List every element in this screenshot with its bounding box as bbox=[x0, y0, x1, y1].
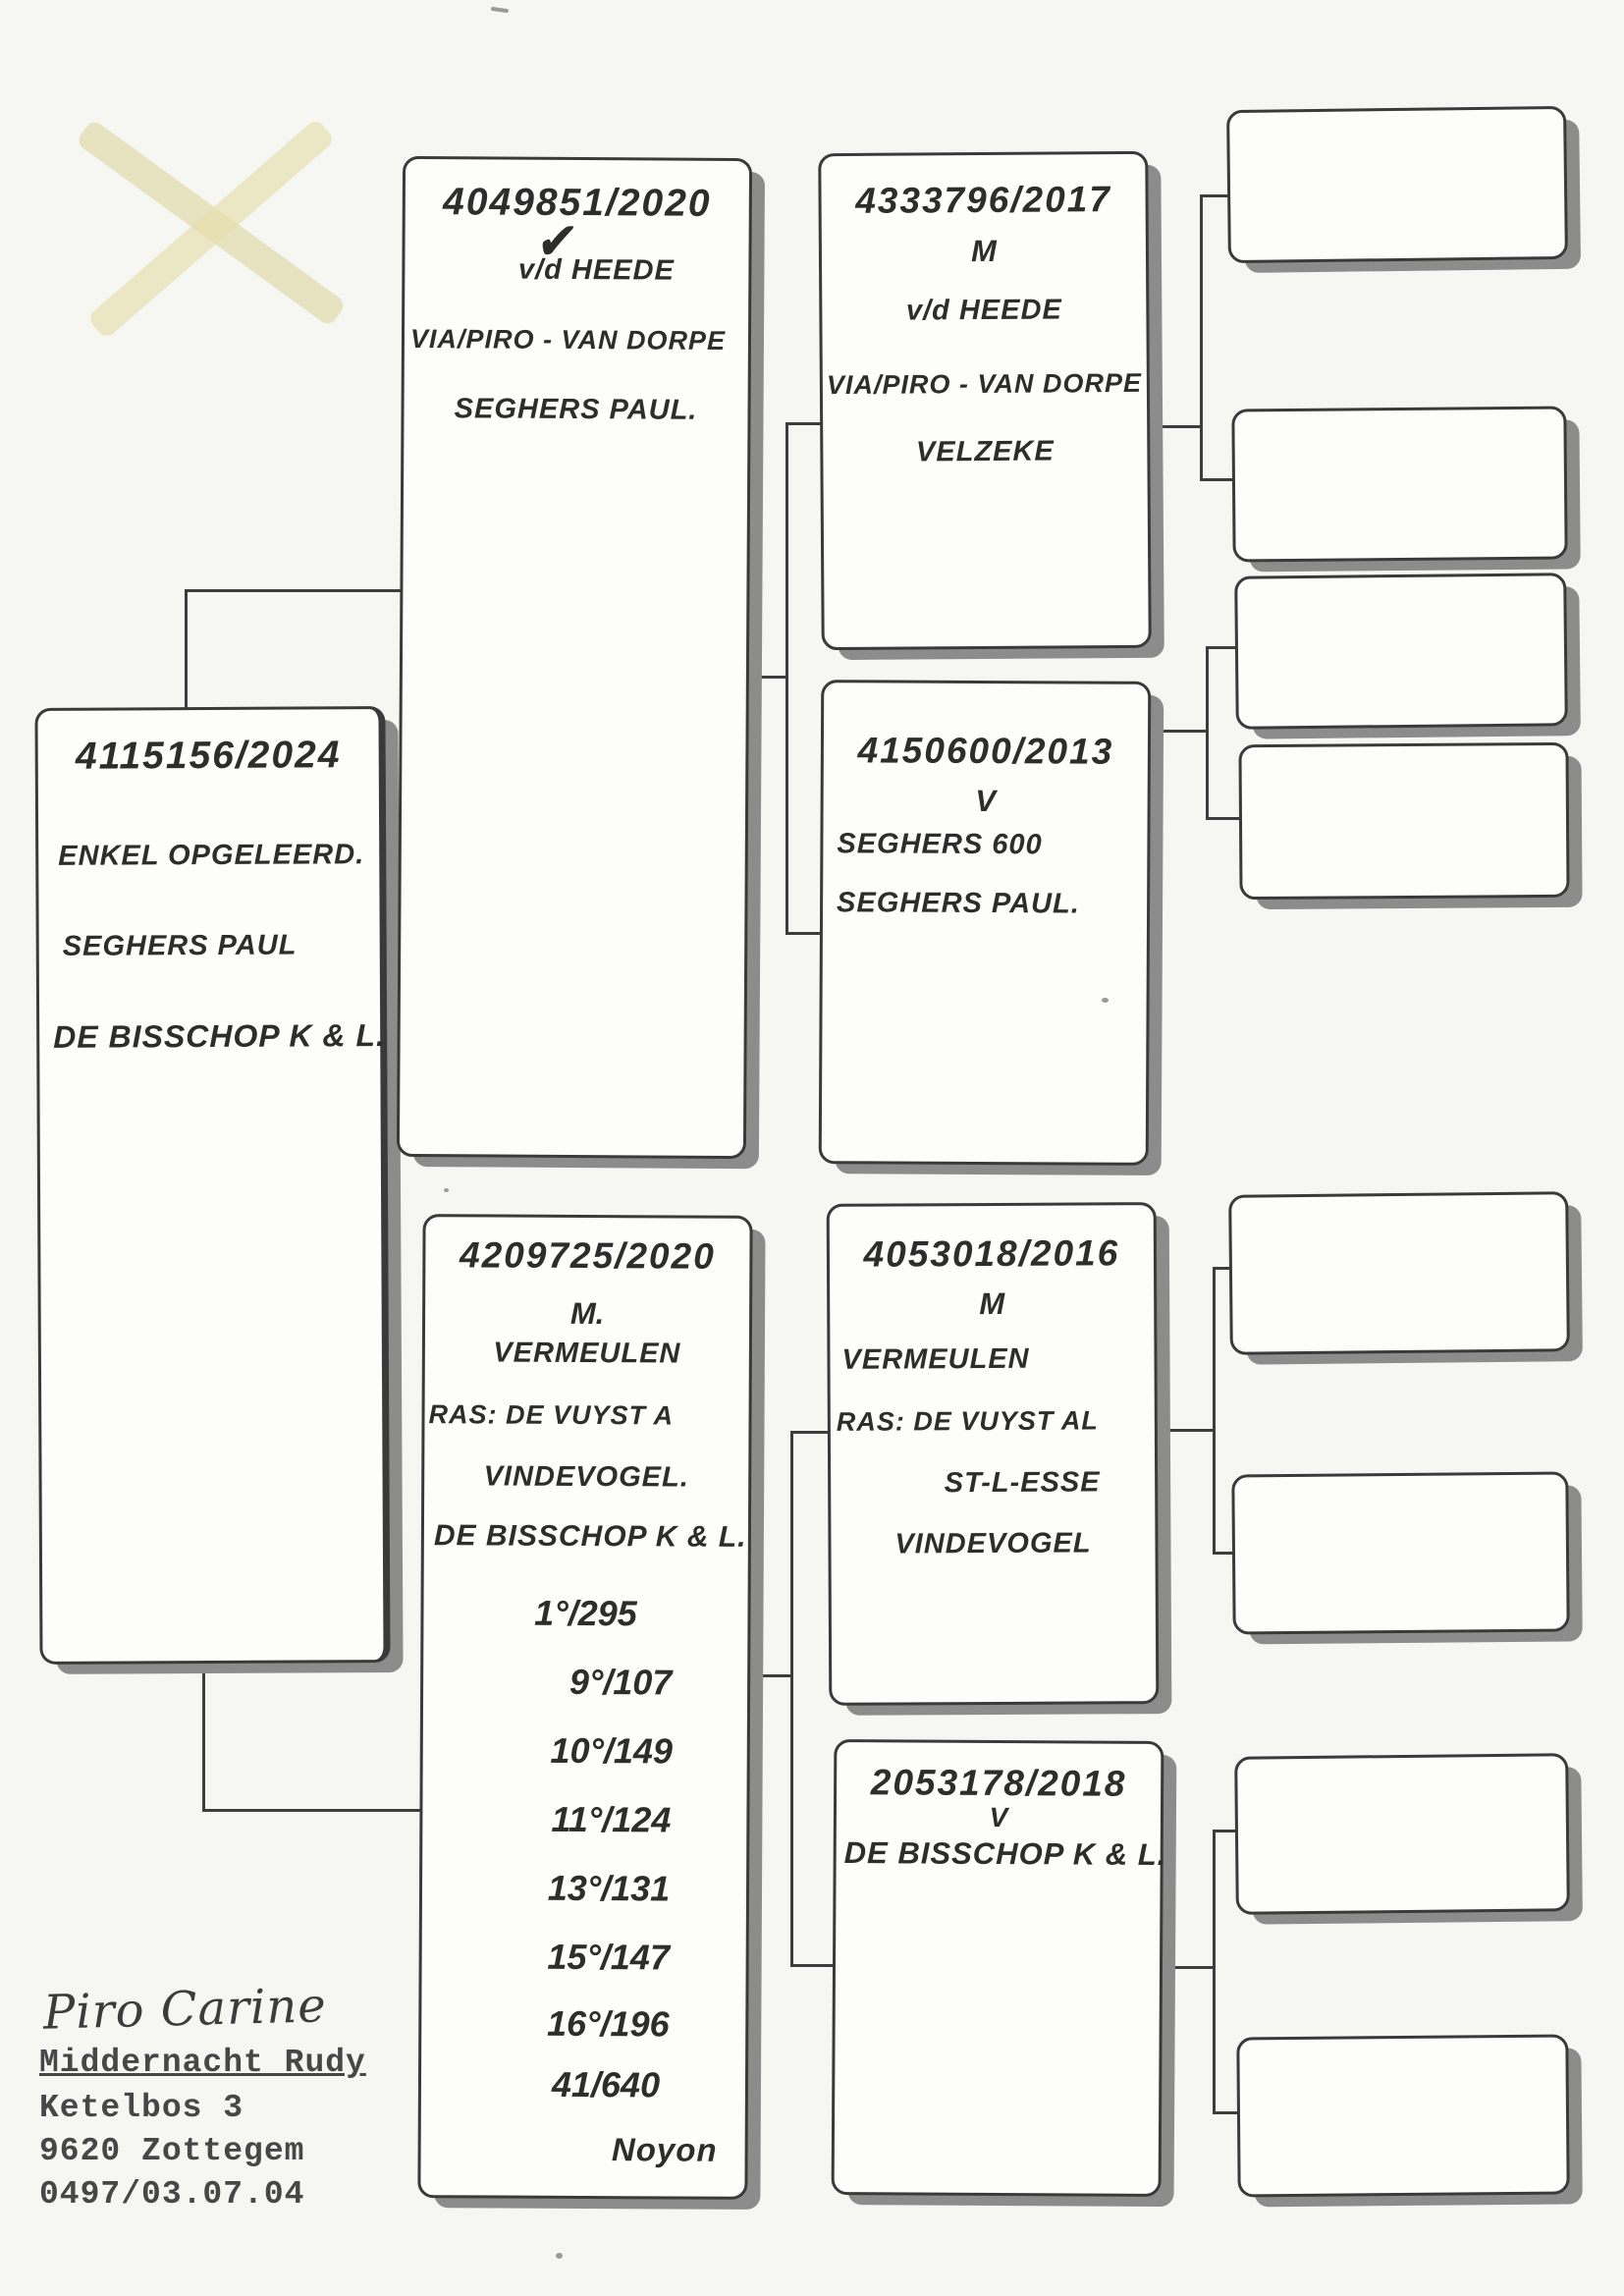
connector-line bbox=[1206, 646, 1237, 649]
pedigree-line: VINDEVOGEL bbox=[839, 1527, 1147, 1561]
pedigree-line: DE BISSCHOP K & L. bbox=[434, 1519, 740, 1555]
sire-box: 4049851/2020 ✔ v/d HEEDE VIA/PIRO - VAN … bbox=[397, 156, 752, 1159]
pedigree-line: VINDEVOGEL. bbox=[432, 1460, 740, 1495]
connector-line bbox=[1152, 1429, 1215, 1432]
dam-box: 4209725/2020 M. VERMEULEN RAS: DE VUYST … bbox=[417, 1214, 752, 2200]
ring-number: 4115156/2024 bbox=[46, 734, 371, 779]
connector-line bbox=[790, 1431, 830, 1434]
connector-line bbox=[785, 932, 822, 935]
pedigree-line: ST-L-ESSE bbox=[839, 1466, 1147, 1501]
pedigree-line: v/d HEEDE bbox=[830, 294, 1138, 328]
connector-line bbox=[1213, 1267, 1216, 1555]
great-grandparent-box-5 bbox=[1228, 1191, 1570, 1355]
connector-line bbox=[1213, 1830, 1237, 1832]
connector-line bbox=[1213, 1552, 1234, 1555]
owner-street: Ketelbos 3 bbox=[39, 2090, 244, 2126]
owner-signature: Piro Carine bbox=[42, 1978, 327, 2041]
connector-line bbox=[743, 676, 787, 679]
connector-line bbox=[1213, 2111, 1239, 2114]
pedigree-line: SEGHERS PAUL. bbox=[837, 887, 1139, 921]
sex-mark: V bbox=[844, 1801, 1153, 1834]
race-result: 11°/124 bbox=[483, 1798, 738, 1840]
scan-speck bbox=[444, 1188, 449, 1192]
great-grandparent-box-8 bbox=[1236, 2035, 1569, 2198]
connector-line bbox=[1144, 425, 1202, 428]
connector-line bbox=[202, 1809, 422, 1812]
scan-speck bbox=[491, 7, 509, 13]
connector-line bbox=[1213, 1830, 1216, 2114]
connector-line bbox=[1200, 194, 1203, 481]
connector-line bbox=[785, 422, 822, 425]
connector-line bbox=[202, 1658, 205, 1812]
great-grandparent-box-7 bbox=[1234, 1753, 1570, 1915]
owner-city: 9620 Zottegem bbox=[39, 2133, 304, 2169]
connector-line bbox=[1200, 478, 1234, 481]
race-result: 1°/295 bbox=[431, 1592, 739, 1635]
grandparent-box-1: 4333796/2017 M v/d HEEDE VIA/PIRO - VAN … bbox=[818, 151, 1152, 650]
connector-line bbox=[1206, 646, 1209, 820]
owner-phone: 0497/03.07.04 bbox=[39, 2176, 304, 2213]
grandparent-box-2: 4150600/2013 V SEGHERS 600 SEGHERS PAUL. bbox=[819, 680, 1152, 1166]
ring-number: 4053018/2016 bbox=[838, 1232, 1146, 1276]
connector-line bbox=[1206, 817, 1241, 820]
sex-mark: M bbox=[838, 1285, 1146, 1323]
connector-line bbox=[1144, 730, 1208, 733]
connector-line bbox=[1200, 194, 1229, 197]
connector-line bbox=[790, 1431, 793, 1967]
race-result: 16°/196 bbox=[478, 2002, 737, 2045]
ring-number: 4333796/2017 bbox=[829, 179, 1137, 222]
pedigree-line: SEGHERS PAUL bbox=[63, 929, 372, 963]
connector-line bbox=[1157, 1966, 1215, 1969]
connector-line bbox=[185, 589, 188, 710]
connector-line bbox=[790, 1964, 835, 1967]
great-grandparent-box-1 bbox=[1226, 106, 1568, 263]
pedigree-line: RAS: DE VUYST AL bbox=[837, 1405, 1147, 1438]
pedigree-line: RAS: DE VUYST A bbox=[428, 1399, 740, 1432]
sex-mark: V bbox=[832, 783, 1140, 820]
sex-mark: M bbox=[830, 233, 1138, 270]
pedigree-line: VIA/PIRO - VAN DORPE bbox=[827, 368, 1139, 401]
pedigree-line: VIA/PIRO - VAN DORPE bbox=[410, 324, 740, 356]
scan-speck bbox=[1102, 998, 1109, 1003]
pedigree-line: VERMEULEN bbox=[841, 1342, 1146, 1377]
race-result: 13°/131 bbox=[479, 1867, 738, 1909]
pedigree-line: DE BISSCHOP K & L. bbox=[53, 1017, 372, 1056]
connector-line bbox=[785, 422, 788, 935]
connector-line bbox=[185, 589, 402, 592]
owner-name: Middernacht Rudy bbox=[39, 2045, 366, 2081]
ring-number: 2053178/2018 bbox=[844, 1762, 1153, 1805]
great-grandparent-box-2 bbox=[1231, 407, 1567, 563]
pedigree-line: VELZEKE bbox=[831, 435, 1139, 469]
connector-line bbox=[744, 1674, 792, 1677]
great-grandparent-box-3 bbox=[1234, 573, 1568, 730]
pedigree-line: VERMEULEN bbox=[433, 1337, 741, 1371]
ring-number: 4209725/2020 bbox=[433, 1234, 741, 1278]
pedigree-line: SEGHERS 600 bbox=[837, 828, 1139, 862]
great-grandparent-box-6 bbox=[1231, 1472, 1569, 1635]
race-result: 15°/147 bbox=[479, 1936, 738, 1978]
sex-mark: M. bbox=[433, 1295, 741, 1333]
race-result: 9°/107 bbox=[502, 1662, 739, 1704]
pedigree-line: DE BISSCHOP K & L. bbox=[844, 1835, 1153, 1873]
pedigree-line: SEGHERS PAUL. bbox=[411, 393, 739, 427]
race-result: 41/640 bbox=[474, 2063, 737, 2105]
scanned-pedigree-page: 4115156/2024 ENKEL OPGELEERD. SEGHERS PA… bbox=[0, 0, 1624, 2296]
grandparent-box-4: 2053178/2018 V DE BISSCHOP K & L. bbox=[832, 1739, 1164, 2197]
pedigree-line: ENKEL OPGELEERD. bbox=[58, 839, 371, 873]
pedigree-line: v/d HEEDE bbox=[412, 253, 740, 288]
race-result: 10°/149 bbox=[484, 1729, 739, 1772]
subject-box: 4115156/2024 ENKEL OPGELEERD. SEGHERS PA… bbox=[34, 706, 390, 1665]
scan-speck bbox=[556, 2253, 563, 2259]
great-grandparent-box-4 bbox=[1238, 742, 1569, 900]
race-name: Noyon bbox=[429, 2130, 718, 2169]
ring-number: 4150600/2013 bbox=[832, 730, 1140, 773]
grandparent-box-3: 4053018/2016 M VERMEULEN RAS: DE VUYST A… bbox=[827, 1202, 1160, 1706]
